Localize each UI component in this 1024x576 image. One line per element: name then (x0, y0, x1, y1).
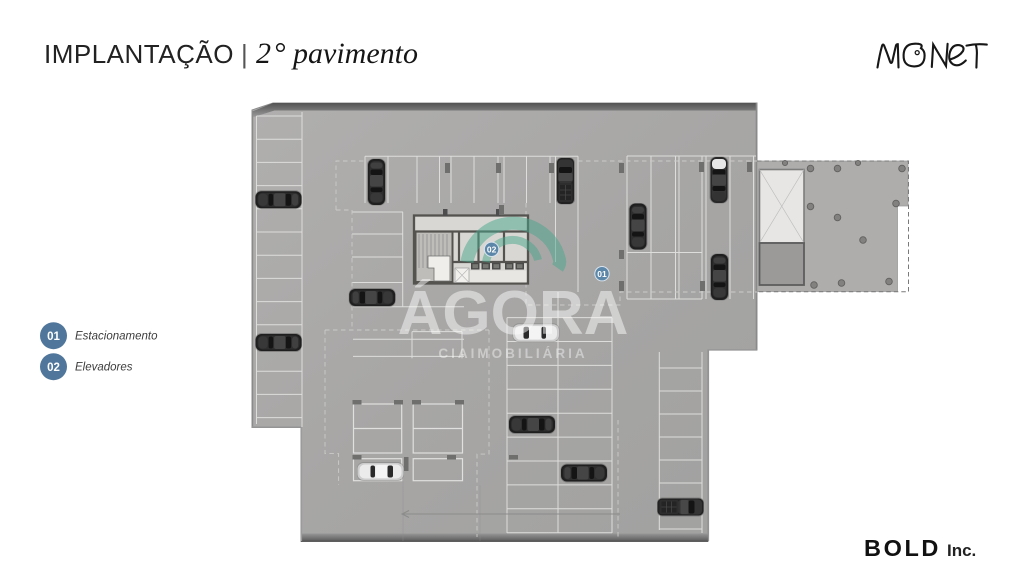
svg-text:CIAIMOBILIÁRIA: CIAIMOBILIÁRIA (438, 346, 587, 361)
svg-text:|: | (241, 39, 248, 69)
svg-text:BOLD: BOLD (864, 535, 941, 561)
svg-text:02: 02 (47, 362, 60, 374)
svg-text:IMPLANTAÇÃO: IMPLANTAÇÃO (44, 39, 234, 69)
svg-text:02: 02 (487, 244, 497, 254)
svg-text:01: 01 (47, 331, 60, 343)
svg-text:Inc.: Inc. (947, 541, 976, 560)
svg-text:ÁGORA: ÁGORA (398, 279, 629, 348)
svg-text:2 ° pavimento: 2 ° pavimento (256, 37, 418, 70)
svg-text:Estacionamento: Estacionamento (75, 331, 158, 343)
svg-text:Elevadores: Elevadores (75, 362, 133, 374)
svg-text:01: 01 (597, 269, 607, 279)
